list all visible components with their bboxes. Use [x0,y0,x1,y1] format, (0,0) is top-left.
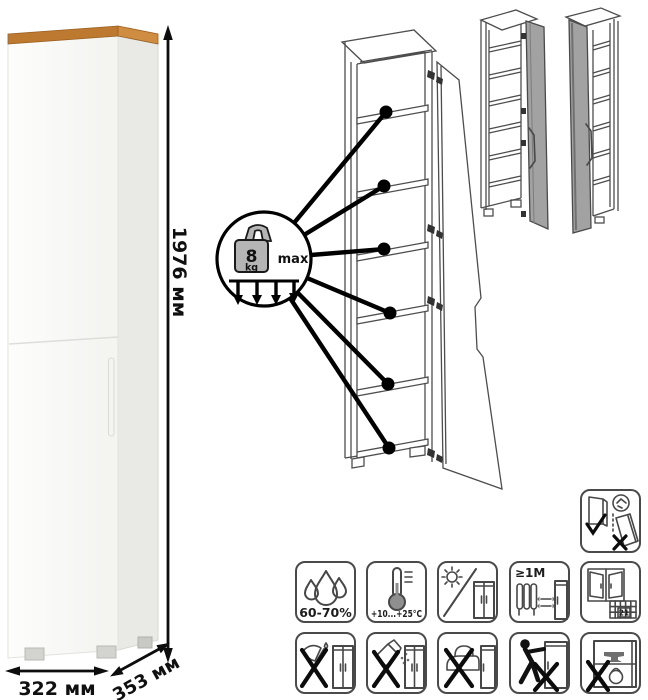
door-handle-groove [109,358,115,436]
height-dimension-label: 1976 мм [168,227,190,318]
height-dimension-arrow [163,25,173,663]
tile-secure-to-wall [580,489,641,553]
tile-no-overloading [580,632,641,694]
gray-door [526,21,548,229]
no-overloading-icon [582,634,639,692]
depth-dimension-label: 353 мм [109,652,183,700]
variant-b-shelves [593,41,610,185]
tile-ventilation: 21 [580,561,641,623]
product-photo: 1976 мм 322 мм 353 мм [0,0,210,700]
shelf-dots [378,106,397,455]
svg-text:21: 21 [619,609,629,618]
product-diagram-sheet: 1976 мм 322 мм 353 мм [0,0,648,700]
no-direct-sunlight-icon [439,563,496,621]
svg-text:60-70%: 60-70% [299,605,352,620]
cabinet-front-face [8,36,118,658]
width-dimension-label: 322 мм [18,678,95,700]
no-hot-objects-icon [439,634,496,692]
tile-no-direct-sunlight [437,561,498,623]
max-load-callout: 8 kg max [217,212,311,306]
shelves [357,105,428,458]
temperature-icon: +10...+25°C [368,563,425,621]
door-variant-left [566,8,620,233]
tile-no-hot-objects [437,632,498,694]
tile-humidity: 60-70% [295,561,356,623]
no-dragging-icon [511,634,568,692]
tile-no-abrasive-cleaners [366,632,427,694]
calendar: 21 [610,601,636,618]
cabinet-foot [25,648,44,660]
max-label: max [278,252,309,267]
cabinet-foot [138,637,152,648]
secure-to-wall-icon [582,491,639,551]
door-variant-right [481,10,548,229]
no-abrasive-cleaners-icon [368,634,425,692]
humidity-icon: 60-70% [297,563,354,621]
tile-temperature: +10...+25°C [366,561,427,623]
heat-source-distance-icon: ≥1М [511,563,568,621]
tile-heat-source-distance: ≥1М [509,561,570,623]
cabinet-foot [97,646,116,658]
tile-no-sharp-tools [295,632,356,694]
ventilation-icon: 21 [582,563,639,621]
no-sharp-tools-icon [297,634,354,692]
tile-no-dragging [509,632,570,694]
svg-text:≥1М: ≥1М [515,566,545,580]
cabinet-side-face [118,36,158,650]
svg-text:+10...+25°C: +10...+25°C [371,609,422,620]
variant-a-hinges [521,33,526,217]
weight-unit: kg [245,263,258,274]
door-variant-drawings [460,3,648,237]
width-dimension-arrow [5,666,109,675]
variant-a-shelves [489,41,521,187]
